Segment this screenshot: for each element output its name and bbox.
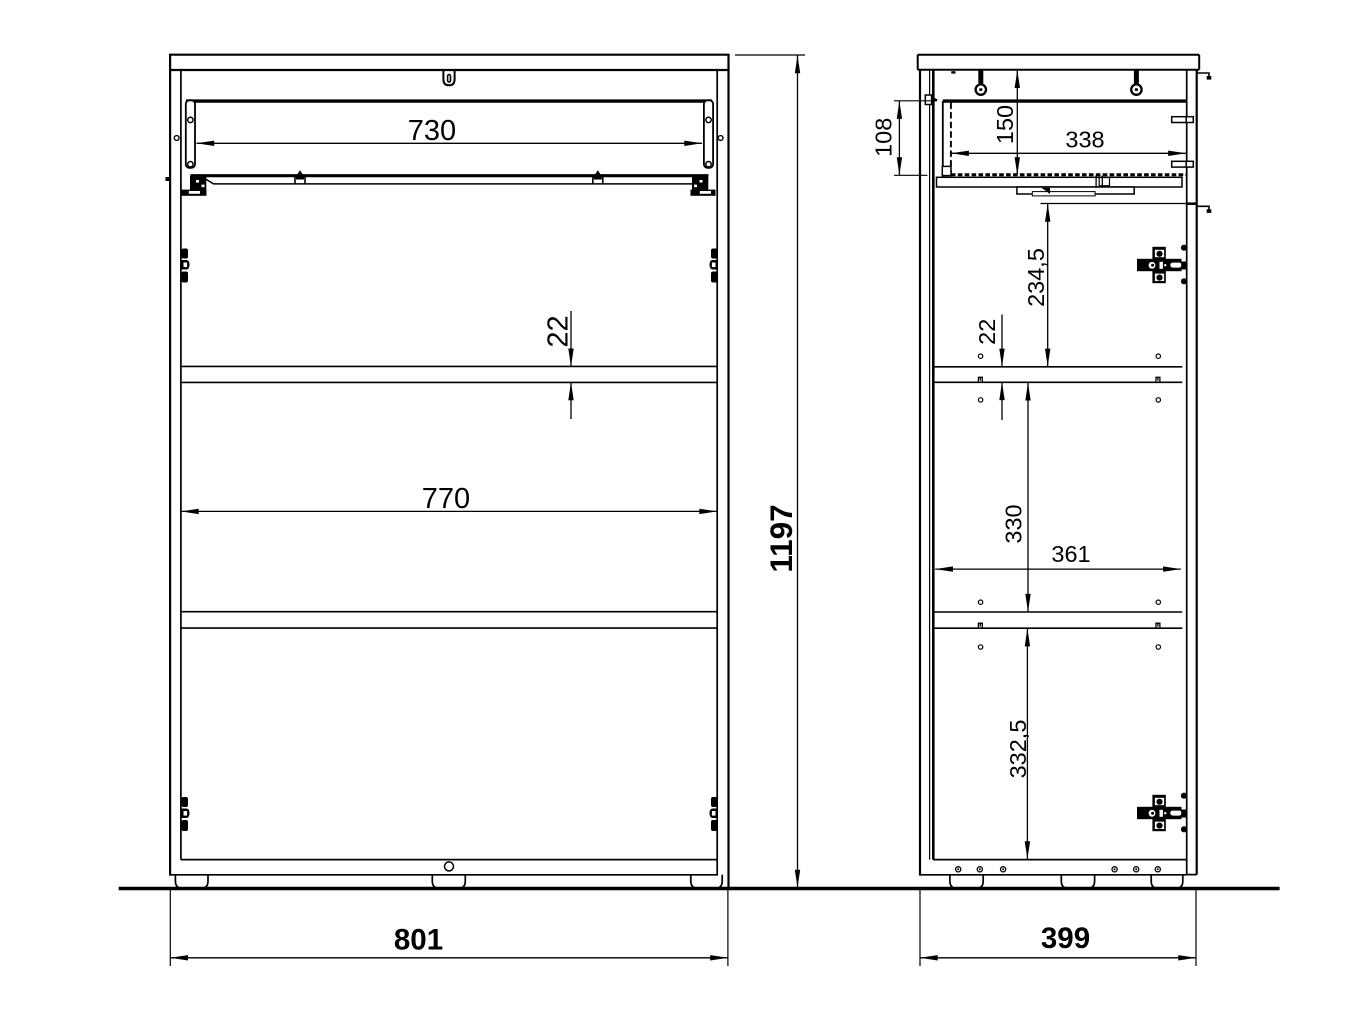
svg-text:338: 338: [1065, 127, 1104, 153]
svg-text:801: 801: [394, 924, 443, 957]
svg-text:332,5: 332,5: [1005, 720, 1031, 779]
svg-text:22: 22: [543, 315, 575, 347]
svg-text:399: 399: [1041, 922, 1090, 955]
svg-text:108: 108: [871, 118, 897, 157]
svg-text:234,5: 234,5: [1023, 248, 1049, 307]
svg-text:1197: 1197: [763, 504, 799, 572]
svg-text:730: 730: [408, 115, 456, 147]
svg-text:330: 330: [1001, 504, 1027, 543]
svg-text:150: 150: [992, 105, 1018, 144]
svg-text:361: 361: [1051, 541, 1090, 567]
svg-text:770: 770: [422, 483, 470, 515]
svg-text:22: 22: [974, 319, 1000, 345]
